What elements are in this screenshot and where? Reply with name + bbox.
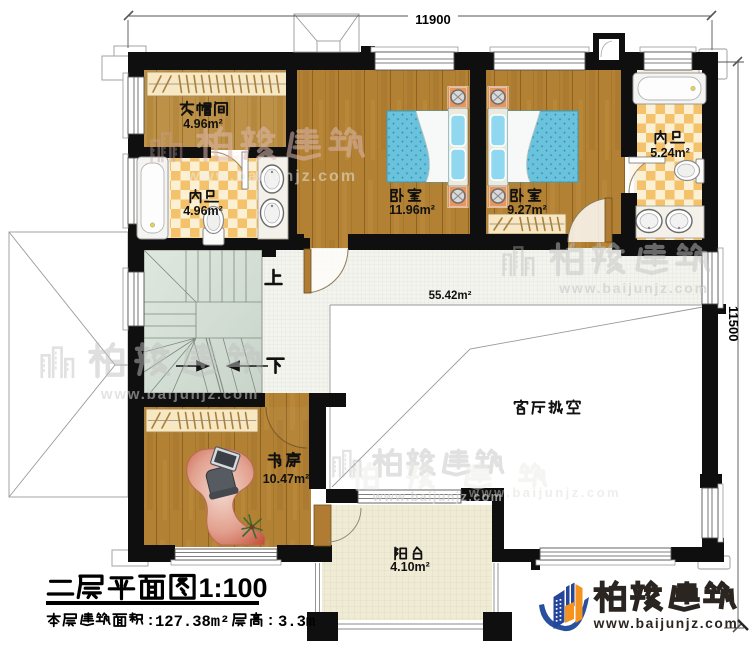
svg-text:www.baijunjz.com: www.baijunjz.com — [593, 616, 739, 631]
svg-text:55.42m²: 55.42m² — [429, 290, 472, 302]
svg-text::: : — [148, 612, 153, 629]
svg-text:4.96m²: 4.96m² — [183, 117, 223, 131]
svg-text::: : — [268, 612, 273, 629]
svg-text:9.27m²: 9.27m² — [507, 203, 547, 217]
svg-text:10.47m²: 10.47m² — [263, 472, 310, 486]
svg-text:127.38m²: 127.38m² — [155, 613, 229, 631]
svg-text:www.baijunjz.com: www.baijunjz.com — [186, 168, 357, 185]
svg-text:4.96m²: 4.96m² — [183, 204, 223, 218]
svg-text:www.baijunjz.com: www.baijunjz.com — [468, 485, 621, 500]
svg-text:11900: 11900 — [415, 12, 450, 27]
svg-text:11500: 11500 — [726, 306, 741, 341]
svg-text:1:100: 1:100 — [198, 573, 267, 603]
svg-text:5.24m²: 5.24m² — [650, 146, 690, 160]
svg-text:11.96m²: 11.96m² — [389, 203, 435, 217]
svg-text:www.baijunjz.com: www.baijunjz.com — [558, 280, 709, 296]
svg-text:4.10m²: 4.10m² — [390, 560, 430, 574]
svg-text:3.3m: 3.3m — [278, 613, 315, 631]
svg-text:www.baijunjz.com: www.baijunjz.com — [100, 386, 259, 403]
